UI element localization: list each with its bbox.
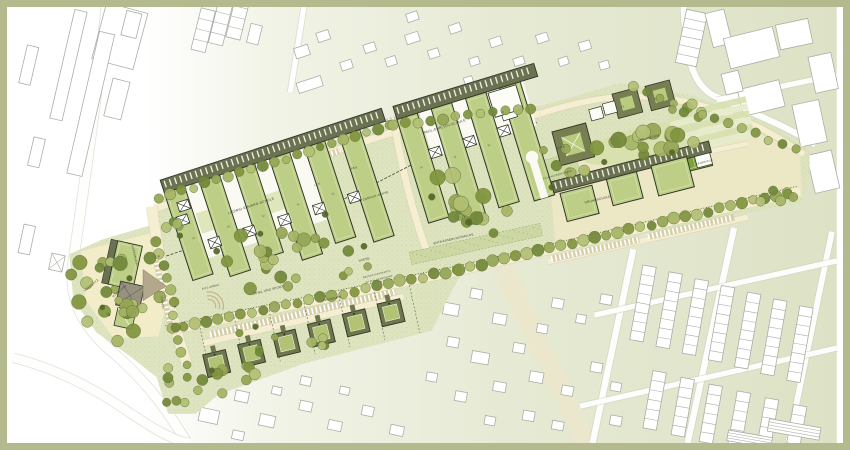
tree xyxy=(451,112,460,121)
tree xyxy=(476,188,491,203)
tree xyxy=(555,240,566,251)
tree xyxy=(127,275,133,281)
tree xyxy=(166,285,177,296)
tree xyxy=(199,176,210,187)
tree xyxy=(338,134,349,145)
context-building xyxy=(610,382,622,392)
tree xyxy=(635,222,645,232)
tree xyxy=(430,170,446,186)
tree xyxy=(101,286,112,297)
tree xyxy=(318,342,326,350)
context-building xyxy=(590,362,603,374)
tree xyxy=(292,150,301,159)
tree xyxy=(343,245,354,256)
context-building xyxy=(339,386,350,396)
tree xyxy=(383,278,393,288)
tree xyxy=(502,206,513,217)
tree xyxy=(154,194,163,203)
tree xyxy=(567,239,577,249)
tree xyxy=(126,324,140,338)
tree xyxy=(768,186,777,195)
tree xyxy=(115,296,123,304)
tree xyxy=(487,255,499,267)
tree xyxy=(668,106,676,114)
tree xyxy=(751,128,761,138)
tree xyxy=(291,274,300,283)
tree xyxy=(100,305,105,310)
context-building xyxy=(609,415,622,427)
tree xyxy=(275,271,287,283)
tree xyxy=(271,334,278,341)
tree xyxy=(671,128,685,142)
context-building xyxy=(271,386,282,396)
context-building xyxy=(361,405,374,417)
tree xyxy=(394,274,406,286)
tree xyxy=(756,197,766,207)
context-building xyxy=(551,298,564,310)
tree xyxy=(257,160,268,171)
tree xyxy=(350,131,361,142)
tree xyxy=(361,283,371,293)
tree xyxy=(241,375,251,385)
tree xyxy=(176,347,186,357)
tree xyxy=(440,268,452,280)
tree xyxy=(281,300,290,309)
tree xyxy=(364,263,372,271)
tree xyxy=(212,175,221,184)
tree xyxy=(623,223,634,234)
tree xyxy=(764,136,772,144)
tree xyxy=(526,104,536,114)
tree xyxy=(413,118,423,128)
tree xyxy=(303,294,313,304)
tree xyxy=(66,269,77,280)
tree xyxy=(453,196,469,212)
tree xyxy=(611,132,627,148)
tree xyxy=(183,373,191,381)
site-plan-map: VORPLATZSUPERMARKTWOHNTURMPPLUDWIG-ERHAR… xyxy=(7,7,843,443)
tree xyxy=(82,316,94,328)
tree xyxy=(657,216,668,227)
tree xyxy=(236,329,243,336)
context-building xyxy=(492,313,507,326)
tree xyxy=(180,398,189,407)
tree xyxy=(197,374,208,385)
tree xyxy=(221,256,233,268)
tree xyxy=(234,167,244,177)
tree xyxy=(601,231,610,240)
tree xyxy=(223,172,234,183)
tree xyxy=(162,398,170,406)
tree xyxy=(400,117,410,127)
tree xyxy=(212,314,223,325)
tree xyxy=(214,248,220,254)
tree xyxy=(736,197,748,209)
context-building xyxy=(447,336,460,348)
tree xyxy=(268,255,278,265)
tree xyxy=(293,299,302,308)
tree xyxy=(714,203,724,213)
context-building xyxy=(299,400,313,412)
tree xyxy=(428,268,439,279)
tree xyxy=(445,167,461,183)
tree xyxy=(698,110,707,119)
context-building xyxy=(551,420,564,431)
tree xyxy=(193,386,202,395)
tree xyxy=(521,247,533,259)
context-building xyxy=(484,415,496,425)
tree xyxy=(259,306,269,316)
tree xyxy=(628,81,638,91)
context-building xyxy=(454,391,467,403)
tree xyxy=(680,211,691,222)
context-building xyxy=(600,294,613,306)
tree xyxy=(316,143,324,151)
tree xyxy=(218,389,228,399)
context-building xyxy=(234,390,249,403)
tree xyxy=(426,116,436,126)
tree xyxy=(710,114,719,123)
tree xyxy=(112,335,124,347)
tree xyxy=(73,255,88,270)
tree xyxy=(361,243,367,249)
tree xyxy=(258,231,264,237)
context-building xyxy=(529,371,544,384)
context-building xyxy=(231,430,244,441)
context-building xyxy=(443,302,460,316)
tree xyxy=(372,124,384,136)
tree xyxy=(126,305,139,318)
context-building xyxy=(471,350,490,364)
tree xyxy=(72,295,87,310)
tree xyxy=(162,273,171,282)
tree xyxy=(406,274,416,284)
tree xyxy=(363,128,371,136)
tree xyxy=(638,142,649,153)
tree xyxy=(725,200,735,210)
tree xyxy=(513,105,523,115)
context-building xyxy=(493,381,507,393)
tree xyxy=(297,233,311,247)
tree xyxy=(254,245,267,258)
tree xyxy=(163,363,172,372)
tree xyxy=(345,267,353,275)
tree xyxy=(307,337,317,347)
tree xyxy=(778,139,787,148)
tree xyxy=(209,368,215,374)
tree xyxy=(350,287,360,297)
tree xyxy=(247,308,256,317)
tree xyxy=(322,211,328,217)
tree xyxy=(247,164,256,173)
context-building xyxy=(426,372,438,382)
tree xyxy=(151,236,161,246)
tree xyxy=(318,334,327,343)
tree xyxy=(579,165,590,176)
tree xyxy=(235,309,245,319)
tree xyxy=(789,192,798,201)
tree xyxy=(549,184,555,190)
tree xyxy=(169,311,178,320)
tree xyxy=(189,318,201,330)
tree xyxy=(388,120,398,130)
tree xyxy=(282,156,290,164)
tree xyxy=(691,209,702,220)
tree xyxy=(201,316,213,328)
tree xyxy=(172,396,181,405)
tree xyxy=(498,253,509,264)
tree xyxy=(792,145,801,154)
tree xyxy=(224,312,234,322)
tree xyxy=(668,212,680,224)
tree xyxy=(276,227,287,238)
tree xyxy=(532,244,544,256)
tree xyxy=(311,234,320,243)
tree xyxy=(171,323,180,332)
tree xyxy=(776,196,786,206)
tree xyxy=(144,252,156,264)
tree xyxy=(544,242,555,253)
tree xyxy=(173,336,182,345)
tree xyxy=(642,88,650,96)
tree xyxy=(687,99,698,110)
tree xyxy=(163,373,173,383)
tree xyxy=(578,234,590,246)
tree xyxy=(190,185,198,193)
tree xyxy=(269,157,279,167)
tree xyxy=(679,107,689,117)
tree xyxy=(234,229,248,243)
context-building xyxy=(561,385,574,397)
tree xyxy=(418,274,427,283)
tree xyxy=(647,221,656,230)
tree xyxy=(703,208,713,218)
tree xyxy=(589,141,604,156)
tree xyxy=(176,185,186,195)
context-building xyxy=(512,342,525,354)
context-building xyxy=(470,288,483,300)
tree xyxy=(737,123,747,133)
tree xyxy=(428,194,435,201)
tree xyxy=(164,188,176,200)
tree xyxy=(476,259,488,271)
tree xyxy=(723,118,733,128)
tree xyxy=(669,149,675,155)
tree xyxy=(540,146,548,154)
context-building xyxy=(522,410,535,422)
tree xyxy=(488,107,497,116)
tree xyxy=(183,361,191,369)
tree xyxy=(465,219,472,226)
tree xyxy=(510,250,521,261)
tree xyxy=(113,256,128,271)
tree xyxy=(551,160,562,171)
tree xyxy=(448,212,459,223)
tree xyxy=(465,262,475,272)
tree xyxy=(95,263,104,272)
tree xyxy=(177,233,183,239)
tree xyxy=(303,146,314,157)
tree xyxy=(253,324,259,330)
tree xyxy=(476,109,485,118)
tree xyxy=(612,227,624,239)
tree xyxy=(489,229,498,238)
tree xyxy=(589,231,601,243)
plan-frame: VORPLATZSUPERMARKTWOHNTURMPPLUDWIG-ERHAR… xyxy=(0,0,850,450)
context-building xyxy=(575,314,586,324)
garage-lot xyxy=(49,253,66,272)
tree xyxy=(328,139,337,148)
tree xyxy=(255,348,263,356)
tree xyxy=(319,238,329,248)
tree xyxy=(453,264,465,276)
context-building xyxy=(536,323,548,333)
context-building xyxy=(300,376,312,387)
tree xyxy=(283,281,293,291)
tree xyxy=(601,159,607,165)
tree xyxy=(269,301,280,312)
tree xyxy=(172,219,182,229)
tree xyxy=(688,136,700,148)
tree xyxy=(159,261,169,271)
